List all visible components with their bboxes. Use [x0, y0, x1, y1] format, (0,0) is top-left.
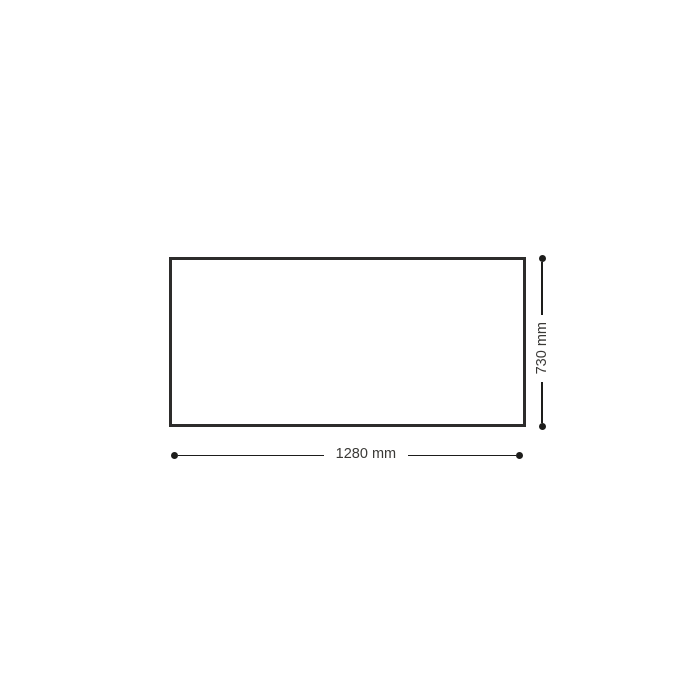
dimension-endpoint-dot-left	[171, 452, 178, 459]
dimension-line-segment	[541, 382, 543, 423]
height-dimension-label: 730 mm	[535, 315, 550, 381]
width-dimension-label: 1280 mm	[324, 447, 408, 462]
dimension-line-segment	[541, 262, 543, 315]
dimension-endpoint-dot-right	[516, 452, 523, 459]
dimension-endpoint-dot-bottom	[539, 423, 546, 430]
panel-outline-rectangle	[169, 257, 526, 427]
dimension-diagram: 1280 mm 730 mm	[0, 0, 700, 700]
width-dimension: 1280 mm	[171, 448, 523, 463]
dimension-endpoint-dot-top	[539, 255, 546, 262]
height-dimension: 730 mm	[534, 255, 550, 430]
dimension-line-segment	[178, 455, 324, 457]
dimension-line-segment	[408, 455, 516, 457]
